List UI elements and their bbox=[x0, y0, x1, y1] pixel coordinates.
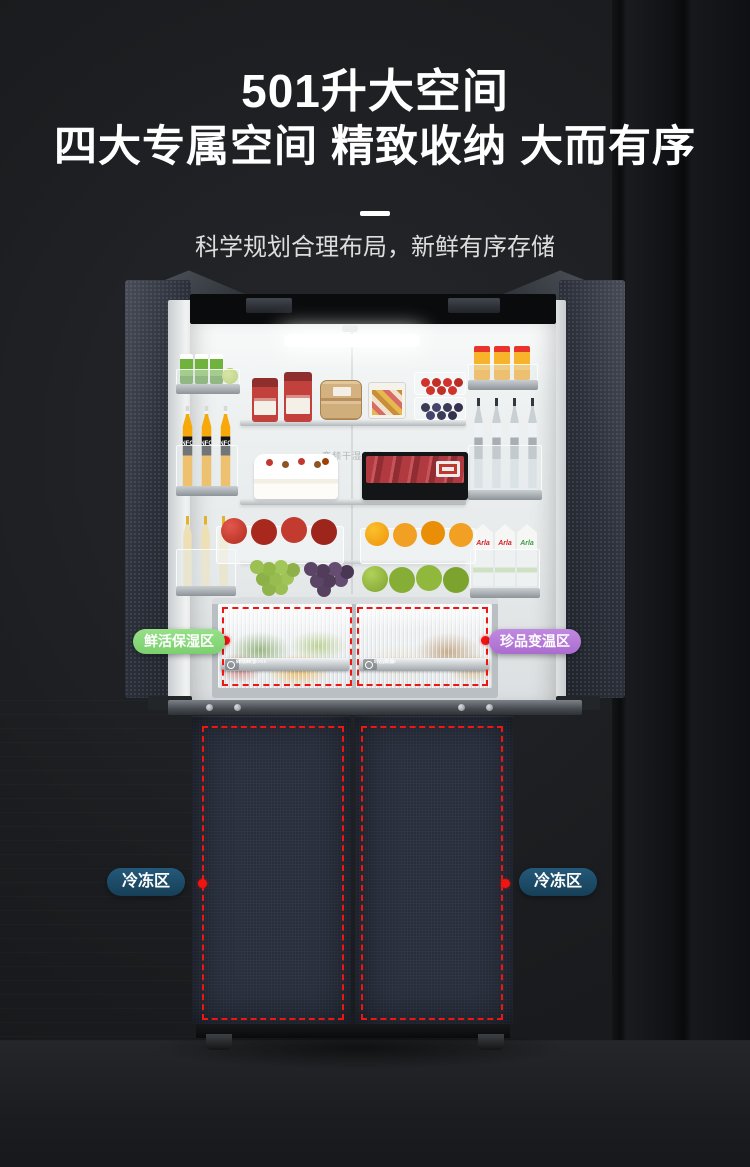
marker-dot-icon bbox=[198, 879, 207, 888]
milk-brand-label: Arla bbox=[473, 540, 493, 547]
center-hinge-band bbox=[168, 700, 582, 715]
bin-base bbox=[176, 486, 238, 496]
orange-box bbox=[360, 528, 476, 564]
interior-sensor bbox=[342, 325, 358, 332]
tomatoes bbox=[421, 378, 430, 387]
zone-label-fresh: 鲜活保湿区 bbox=[133, 629, 225, 654]
door-bin bbox=[468, 400, 542, 500]
zone-label-freezer-right: 冷冻区 bbox=[519, 868, 597, 896]
jam-jar bbox=[252, 378, 278, 422]
fruit-cup bbox=[368, 382, 406, 419]
divider-dash bbox=[360, 211, 390, 216]
door-bin bbox=[468, 342, 538, 390]
left-hinge bbox=[246, 298, 292, 313]
variable-zone-outline bbox=[357, 607, 488, 686]
plinth bbox=[196, 1024, 510, 1038]
screw bbox=[458, 704, 465, 711]
green-grape-cluster bbox=[250, 560, 264, 574]
freezer-right-outline bbox=[361, 726, 503, 1020]
bin-base bbox=[468, 380, 538, 390]
freezer-left-outline bbox=[202, 726, 344, 1020]
bin-base bbox=[176, 384, 240, 394]
screw bbox=[486, 704, 493, 711]
tagline: 科学规划合理布局，新鲜有序存储 bbox=[0, 227, 750, 262]
screw bbox=[234, 704, 241, 711]
bin-base bbox=[176, 586, 236, 596]
screw bbox=[206, 704, 213, 711]
bin-base bbox=[468, 490, 542, 500]
tomato-box bbox=[414, 372, 466, 395]
marker-dot-icon bbox=[501, 879, 510, 888]
interior-led-light bbox=[284, 334, 420, 347]
blueberry-box bbox=[414, 397, 466, 420]
blueberries bbox=[421, 403, 430, 412]
cabinet-top-frame bbox=[190, 294, 556, 324]
zone-label-freezer-left: 冷冻区 bbox=[107, 868, 185, 896]
fresh-zone-outline bbox=[222, 607, 352, 686]
cream-cake bbox=[254, 454, 338, 499]
apple-box bbox=[216, 526, 344, 564]
leveling-foot bbox=[206, 1034, 232, 1050]
leveling-foot bbox=[478, 1034, 504, 1050]
zone-label-variable-temp: 珍品变温区 bbox=[489, 629, 581, 654]
milk-brand-label: Arla bbox=[517, 540, 537, 547]
right-wall-panel bbox=[612, 0, 750, 1167]
interior-center-seam bbox=[351, 332, 353, 594]
headline-zones: 四大专属空间 精致收纳 大而有序 bbox=[0, 112, 750, 174]
bin-base bbox=[470, 588, 540, 598]
milk-brand-label: Arla bbox=[495, 540, 515, 547]
door-bin: Arla Arla Arla bbox=[470, 508, 540, 598]
door-bin: NFC NFC NFC bbox=[176, 404, 238, 496]
meat-pack bbox=[362, 452, 468, 500]
right-hinge bbox=[448, 298, 500, 313]
purple-grape-cluster bbox=[304, 562, 318, 576]
jam-jar bbox=[284, 372, 312, 422]
poster: 501升大空间 四大专属空间 精致收纳 大而有序 科学规划合理布局，新鲜有序存储… bbox=[0, 0, 750, 1167]
door-bin bbox=[176, 348, 240, 394]
cheese-box-stack bbox=[320, 380, 362, 420]
green-apple-row bbox=[362, 566, 388, 592]
